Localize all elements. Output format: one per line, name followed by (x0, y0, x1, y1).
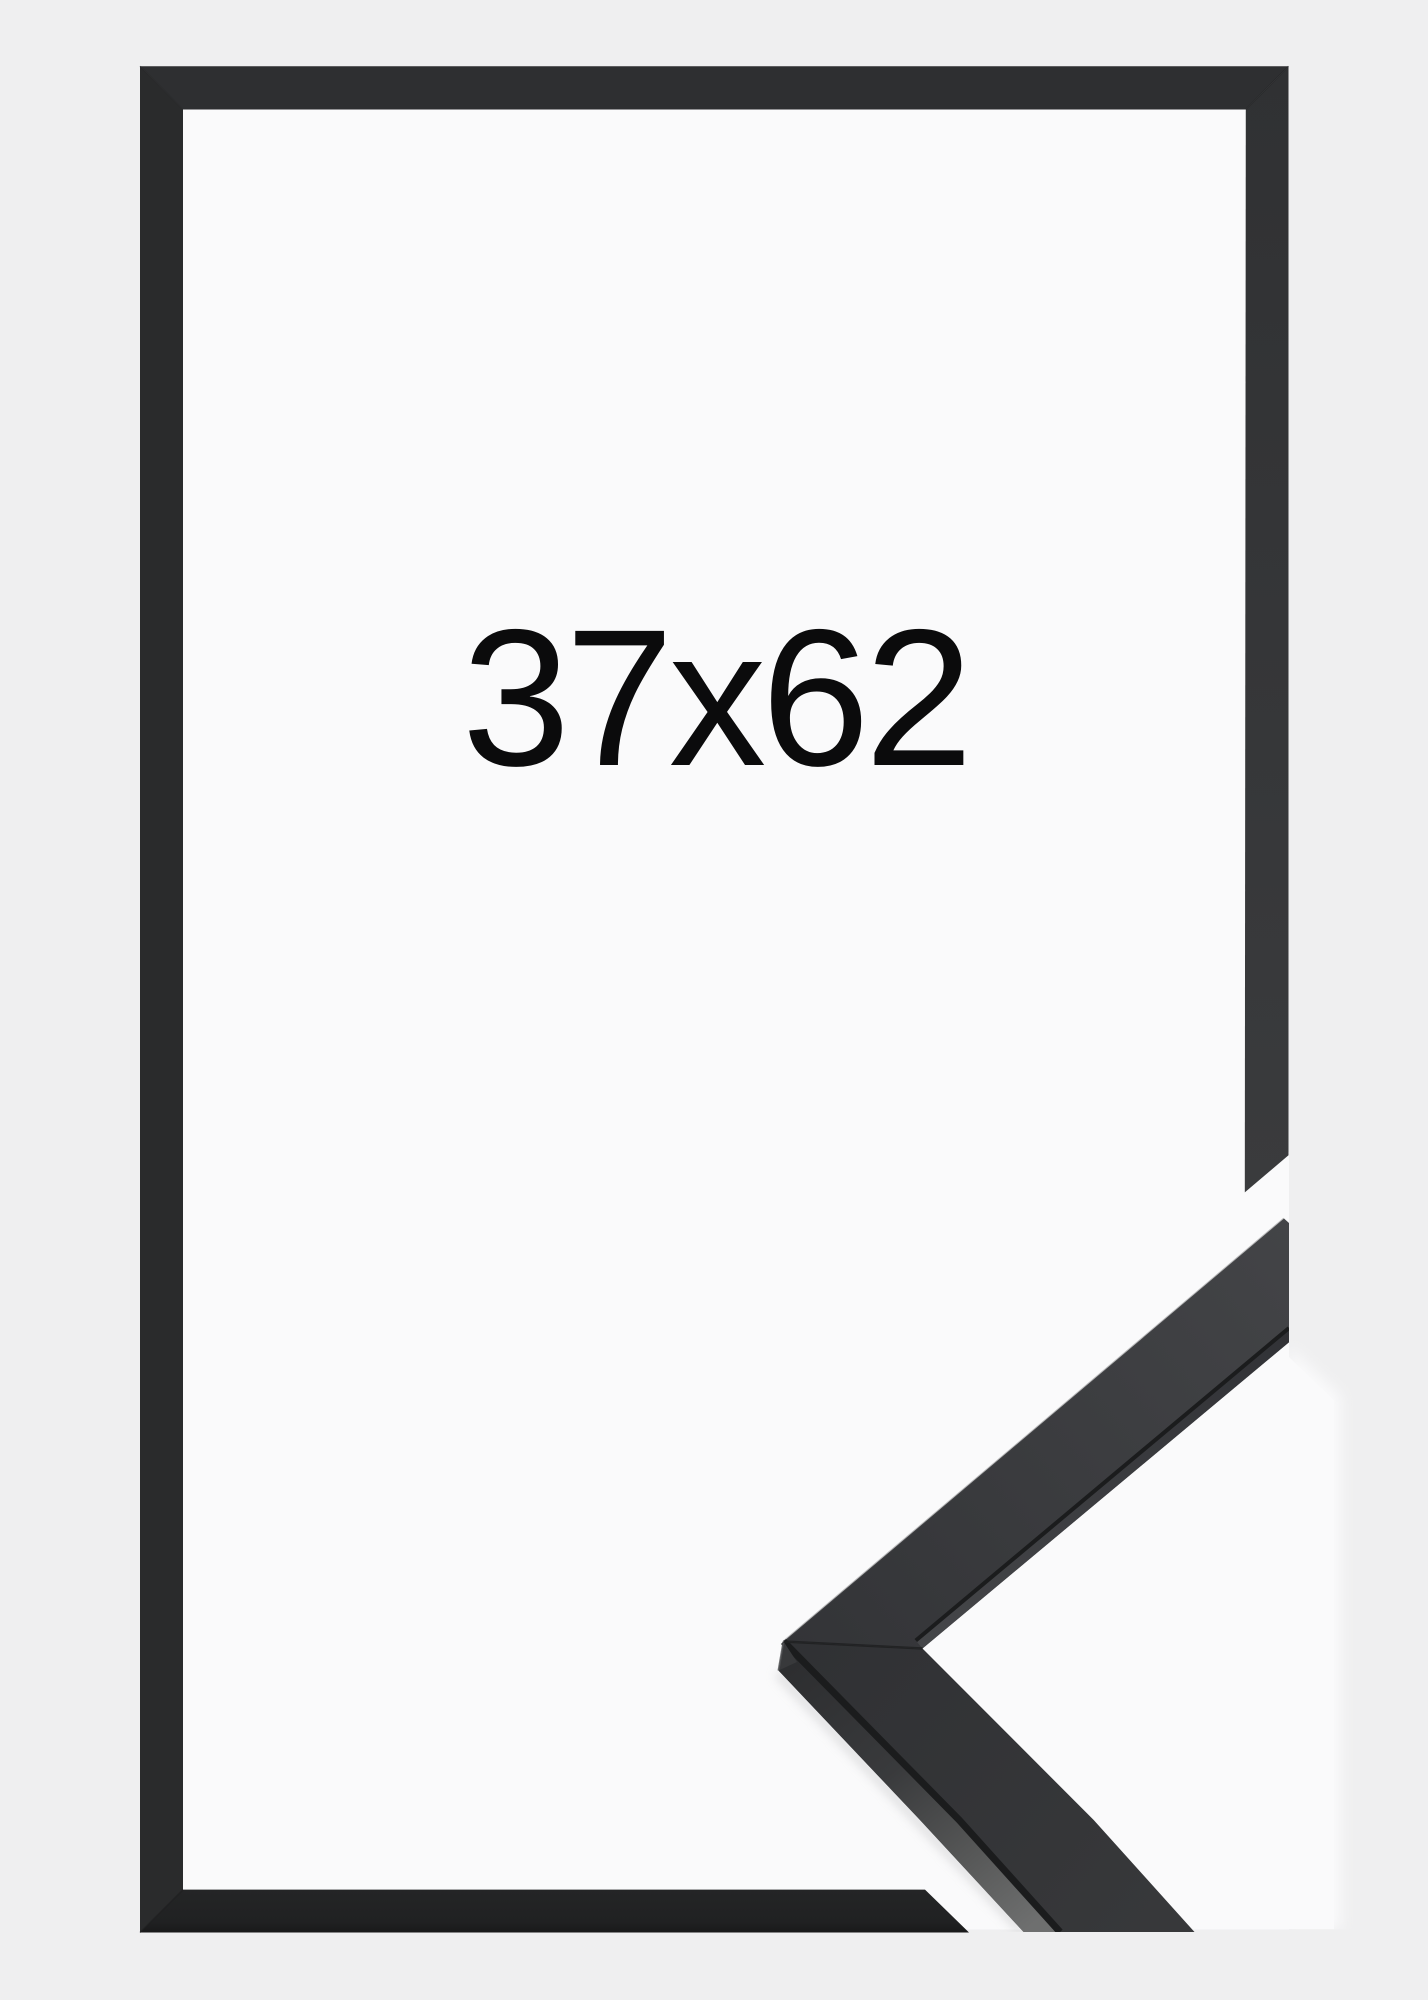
svg-text:37x62: 37x62 (462, 589, 968, 807)
